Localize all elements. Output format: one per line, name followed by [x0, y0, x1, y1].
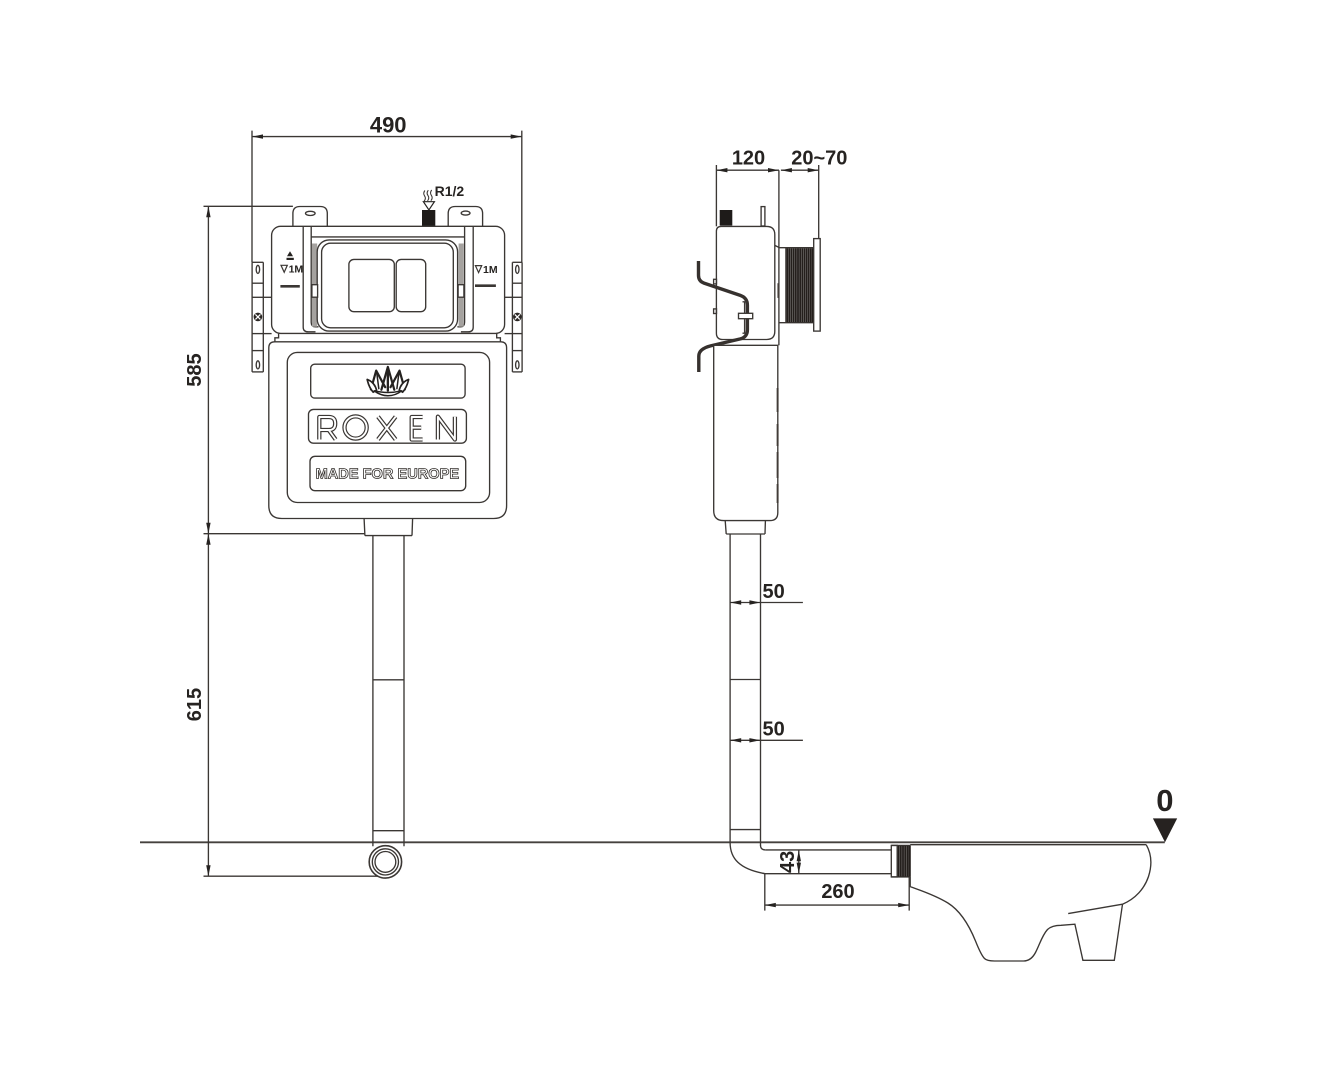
svg-text:1M: 1M	[483, 264, 498, 276]
svg-text:490: 490	[370, 112, 407, 137]
svg-text:585: 585	[184, 353, 206, 386]
svg-text:20~70: 20~70	[791, 148, 847, 170]
svg-text:120: 120	[732, 148, 765, 170]
svg-text:R1/2: R1/2	[435, 183, 465, 199]
svg-text:260: 260	[821, 881, 854, 903]
svg-text:50: 50	[763, 719, 785, 741]
svg-text:615: 615	[184, 688, 206, 721]
svg-text:50: 50	[763, 581, 785, 603]
svg-text:43: 43	[777, 851, 799, 873]
svg-text:MADE FOR EUROPE: MADE FOR EUROPE	[316, 466, 460, 482]
svg-text:0: 0	[1156, 783, 1173, 818]
svg-text:1M: 1M	[289, 264, 304, 276]
